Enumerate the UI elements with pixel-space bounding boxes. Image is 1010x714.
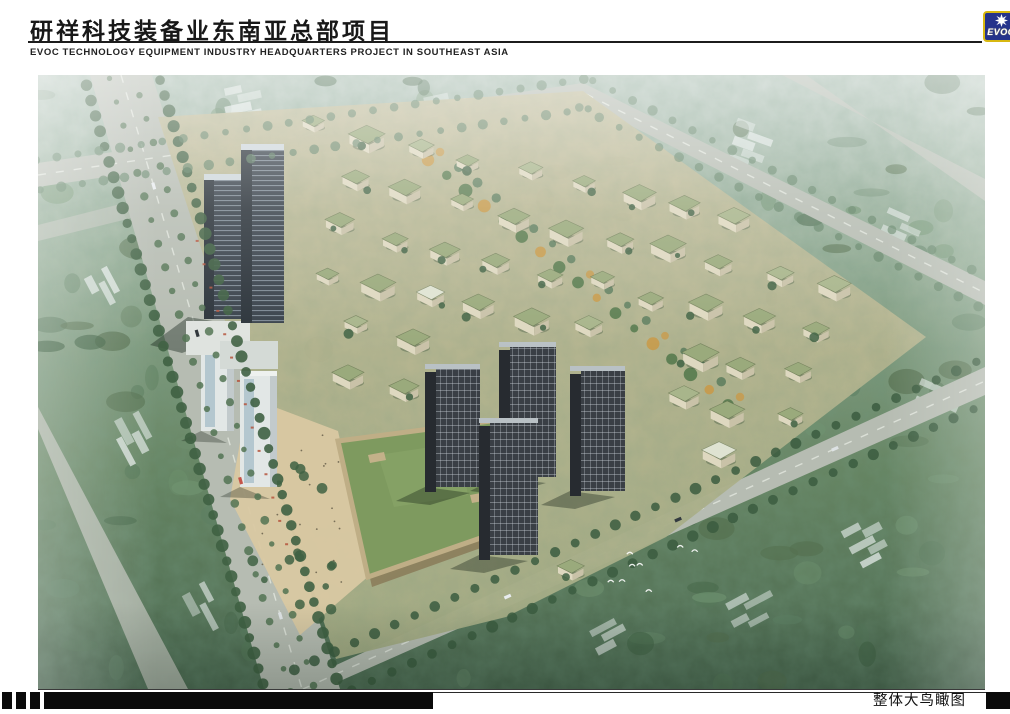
evoc-logo: EVOC (983, 11, 1010, 42)
footer-stripe (30, 692, 40, 709)
project-title-en: EVOC TECHNOLOGY EQUIPMENT INDUSTRY HEADQ… (30, 47, 509, 58)
starburst-icon (995, 14, 1008, 27)
presentation-board: 研祥科技装备业东南亚总部项目 EVOC TECHNOLOGY EQUIPMENT… (0, 0, 1010, 714)
title-underline (28, 41, 982, 43)
view-caption: 整体大鸟瞰图 (873, 693, 966, 710)
footer-stripe (16, 692, 26, 709)
footer-stripe (2, 692, 12, 709)
footer-bar (44, 692, 433, 709)
footer-end-block (986, 692, 1010, 709)
caption-box: 整体大鸟瞰图 (433, 692, 986, 709)
board-footer: 整体大鸟瞰图 (0, 692, 1010, 709)
aerial-rendering (38, 75, 985, 690)
evoc-logo-text: EVOC (987, 27, 1010, 37)
aerial-rendering-canvas (38, 75, 985, 689)
